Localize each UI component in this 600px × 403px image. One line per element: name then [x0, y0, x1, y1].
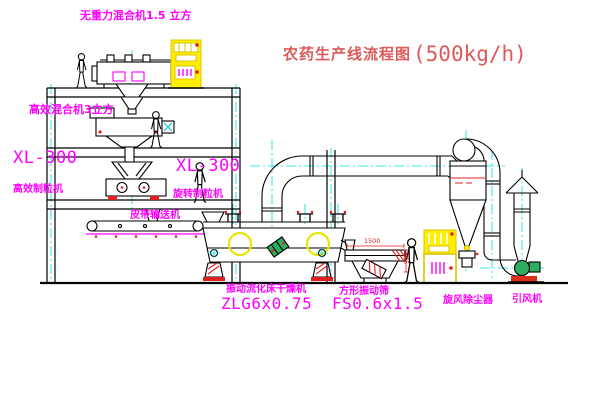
control-cabinet-2 — [424, 230, 456, 283]
sieve-drawing — [345, 240, 409, 283]
control-cabinet-1 — [168, 40, 204, 88]
high-eff-mixer-drawing — [90, 108, 174, 162]
label-fan: 引风机 — [512, 295, 542, 305]
title-text: 农药生产线流程图 — [283, 47, 411, 62]
flow-diagram-canvas: 农药生产线流程图(500kg/h) 无重力混合机1.5 立方 高效混合机3立方 … — [0, 0, 600, 403]
diagram-title: 农药生产线流程图(500kg/h) — [283, 44, 527, 65]
dim-sieve-height: 345 — [403, 252, 409, 264]
dryer-top-nozzles — [225, 211, 347, 222]
label-granulator-mid-model: XL-300 — [176, 158, 240, 175]
label-sieve-model: FS0.6x1.5 — [332, 296, 423, 312]
label-granulator-mid-name: 旋转制粒机 — [173, 190, 223, 200]
label-belt-conveyor: 皮带输送机 — [130, 211, 180, 221]
label-dryer-model: ZLG6x0.75 — [221, 296, 312, 312]
label-cyclone: 旋风除尘器 — [443, 296, 493, 306]
title-capacity: (500kg/h) — [413, 44, 527, 65]
person-top-floor — [76, 54, 86, 88]
label-granulator-left-name: 高效制粒机 — [13, 185, 63, 195]
label-gravity-mixer: 无重力混合机1.5 立方 — [80, 10, 191, 21]
fan-drawing — [508, 261, 544, 283]
dim-sieve-length: 1500 — [364, 238, 380, 244]
label-granulator-left-model: XL-300 — [13, 150, 77, 167]
label-high-eff-mixer: 高效混合机3立方 — [29, 104, 114, 115]
